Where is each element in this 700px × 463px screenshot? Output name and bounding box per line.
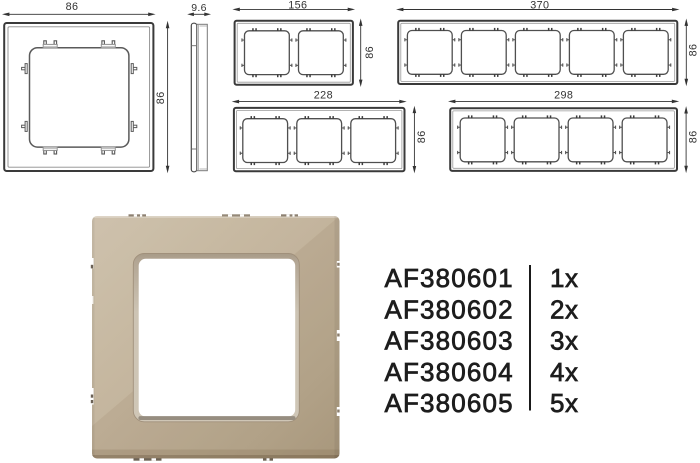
- svg-text:298: 298: [554, 90, 573, 102]
- svg-text:AF380604: AF380604: [385, 357, 514, 387]
- svg-text:86: 86: [687, 44, 699, 57]
- svg-text:3x: 3x: [550, 326, 579, 356]
- svg-text:AF380601: AF380601: [385, 263, 514, 293]
- svg-text:AF380605: AF380605: [385, 388, 514, 418]
- svg-text:370: 370: [530, 0, 549, 12]
- svg-text:86: 86: [155, 91, 167, 104]
- svg-text:228: 228: [314, 90, 333, 102]
- svg-text:5x: 5x: [550, 388, 579, 418]
- svg-text:86: 86: [416, 130, 428, 143]
- svg-text:156: 156: [288, 0, 307, 12]
- svg-text:9.6: 9.6: [191, 2, 207, 14]
- svg-text:AF380602: AF380602: [385, 294, 514, 324]
- svg-text:4x: 4x: [550, 357, 579, 387]
- svg-text:2x: 2x: [550, 294, 579, 324]
- svg-text:AF380603: AF380603: [385, 326, 514, 356]
- svg-text:86: 86: [687, 130, 699, 143]
- svg-text:1x: 1x: [550, 263, 579, 293]
- svg-text:86: 86: [364, 46, 376, 59]
- svg-text:86: 86: [66, 1, 79, 13]
